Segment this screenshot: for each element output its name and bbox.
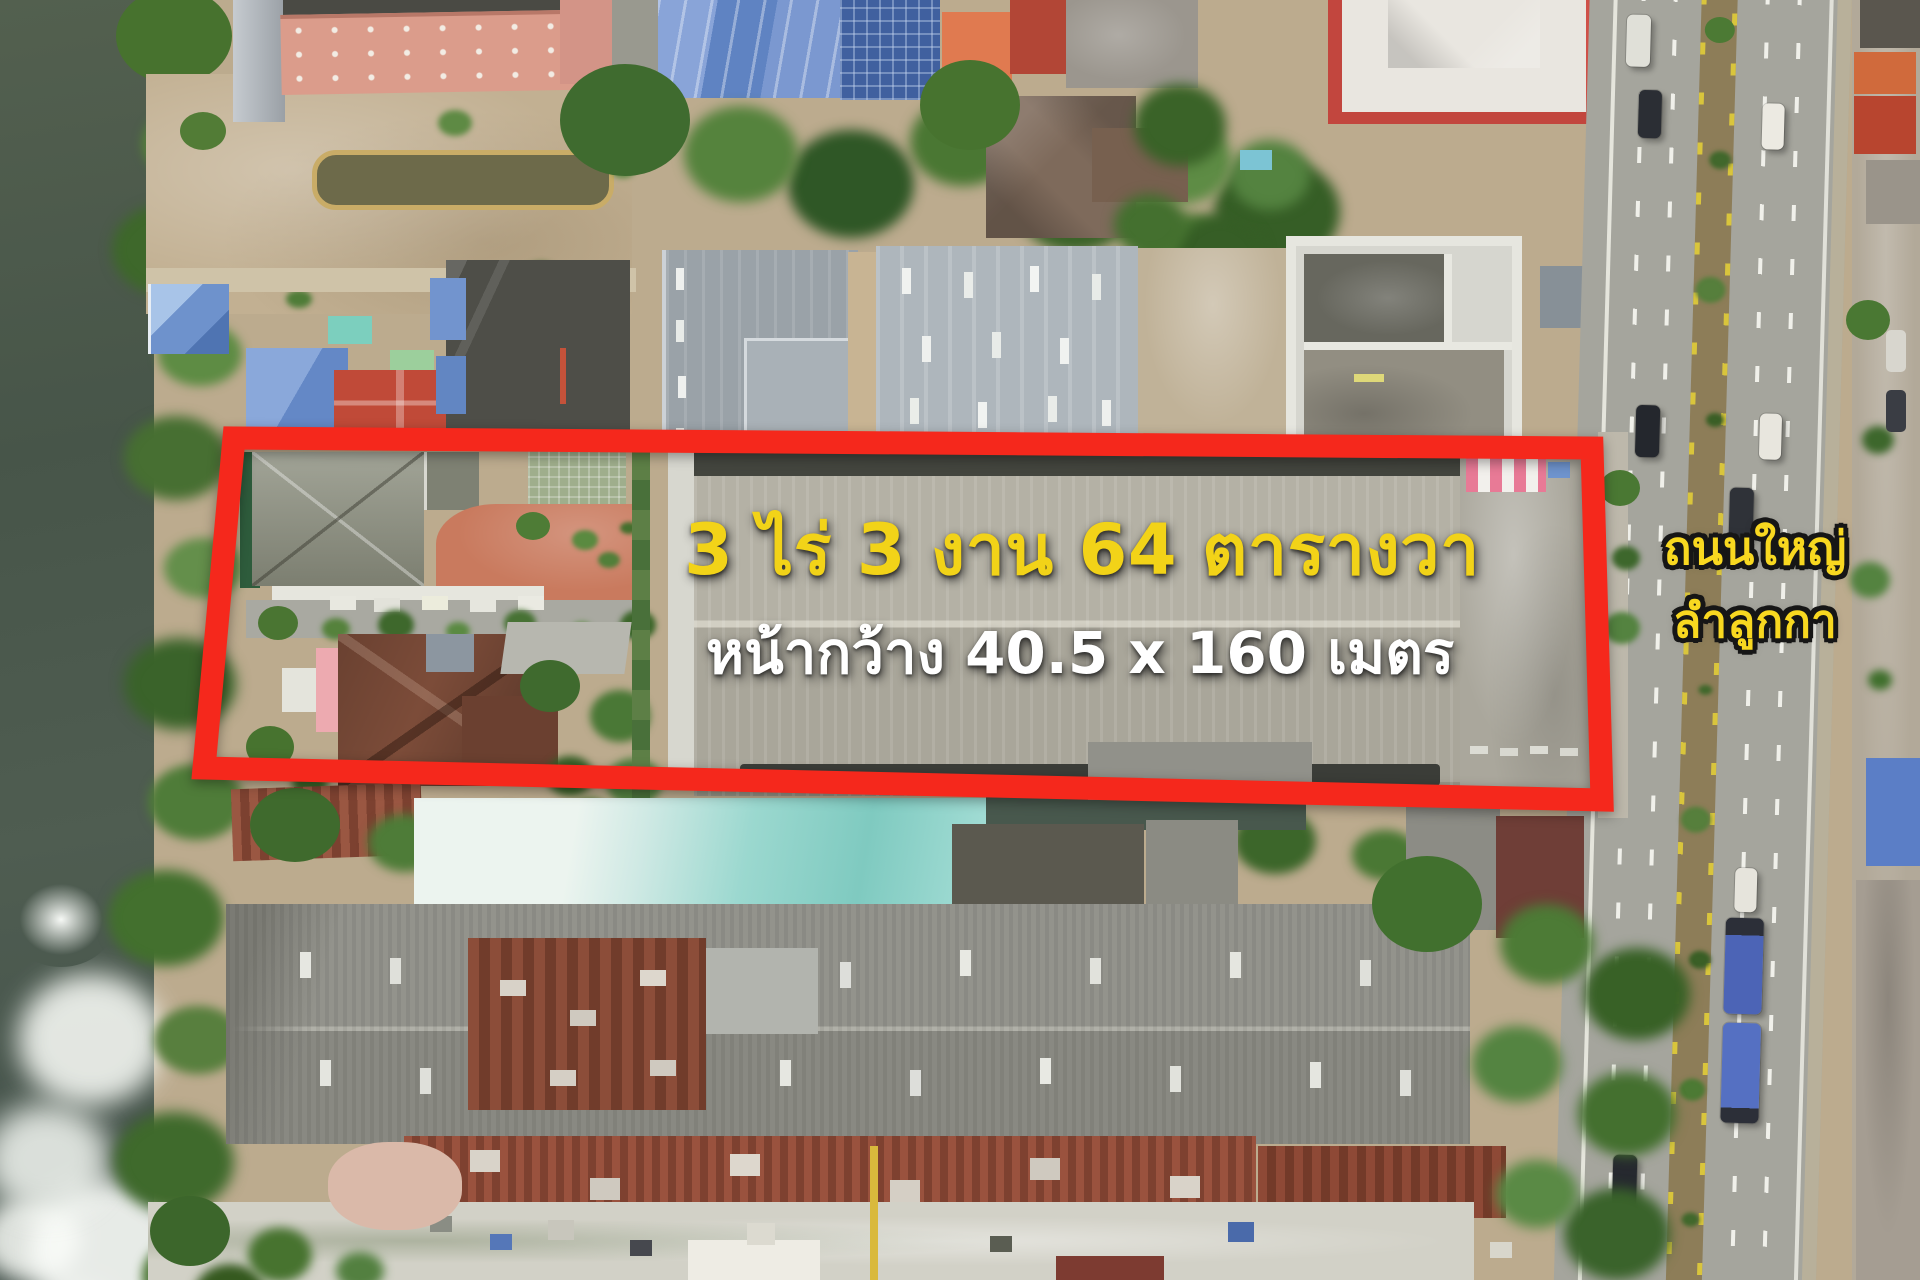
aerial-property-photo: 3 ไร่ 3 งาน 64 ตารางวา หน้ากว้าง 40.5 x … [0, 0, 1920, 1280]
road-name-label: ถนนใหญ่ ลำลูกกา [1630, 512, 1880, 657]
road-name-line1: ถนนใหญ่ [1630, 512, 1880, 585]
road-name-line2: ลำลูกกา [1630, 585, 1880, 658]
area-label: 3 ไร่ 3 งาน 64 ตารางวา [672, 512, 1492, 589]
frontage-label: หน้ากว้าง 40.5 x 160 เมตร [660, 620, 1500, 687]
